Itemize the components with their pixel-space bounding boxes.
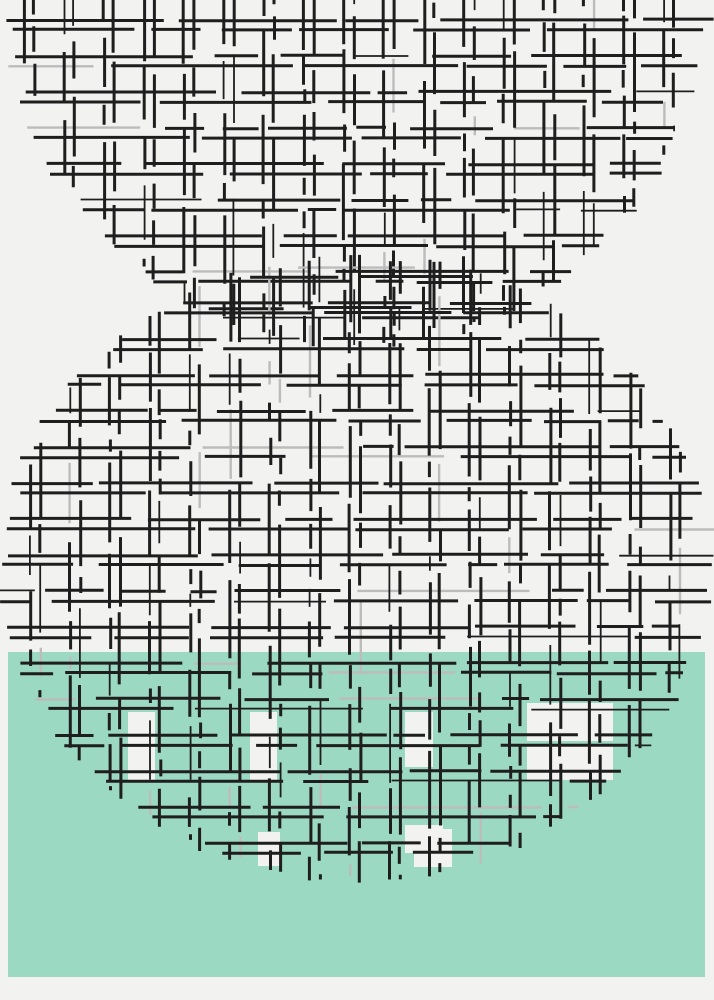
- abstract-grid-poster: [0, 0, 714, 1000]
- white-cell: [414, 829, 452, 867]
- artwork-canvas: [0, 0, 714, 1000]
